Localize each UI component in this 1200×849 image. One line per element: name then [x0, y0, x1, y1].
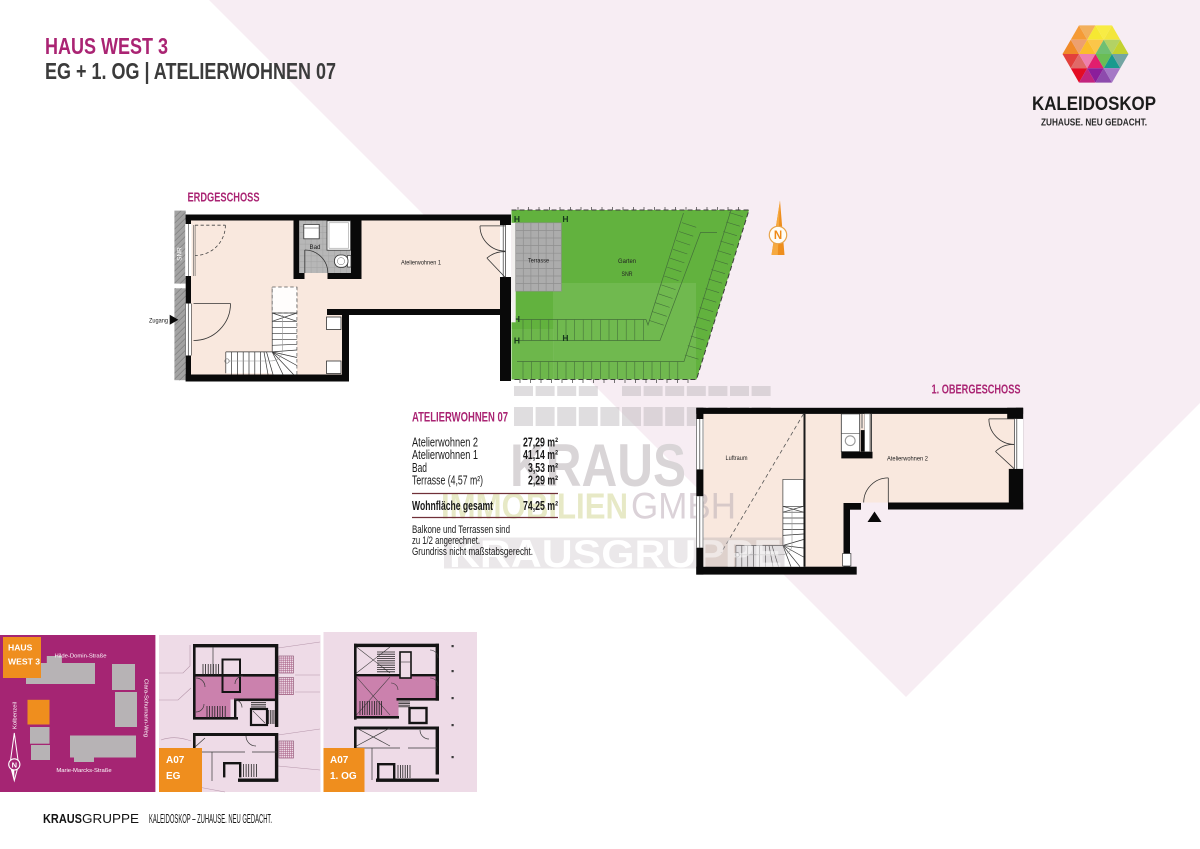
svg-text:A07: A07 — [166, 755, 185, 766]
svg-text:Garten: Garten — [618, 258, 636, 265]
svg-text:ATELIERWOHNEN 07: ATELIERWOHNEN 07 — [412, 409, 508, 425]
svg-text:SNR: SNR — [177, 247, 184, 261]
svg-text:HAUS WEST 3: HAUS WEST 3 — [45, 33, 168, 59]
svg-text:Grundriss nicht maßstabsgerech: Grundriss nicht maßstabsgerecht. — [412, 546, 533, 558]
svg-text:Terrasse (4,57 m²): Terrasse (4,57 m²) — [412, 473, 483, 488]
svg-text:Hilde-Domin-Straße: Hilde-Domin-Straße — [54, 654, 107, 660]
svg-text:HAUS: HAUS — [8, 643, 33, 653]
svg-text:EG + 1. OG | ATELIERWOHNEN 07: EG + 1. OG | ATELIERWOHNEN 07 — [45, 58, 336, 84]
svg-text:Clara-Schumann-Weg: Clara-Schumann-Weg — [143, 679, 149, 737]
svg-text:A07: A07 — [330, 755, 349, 766]
svg-text:H: H — [562, 333, 568, 343]
svg-text:N: N — [774, 230, 782, 242]
svg-text:Atelierwohnen 1: Atelierwohnen 1 — [401, 260, 441, 267]
svg-text:Kolbenzeil: Kolbenzeil — [13, 702, 19, 729]
svg-text:KALEIDOSKOP – ZUHAUSE. NEU GED: KALEIDOSKOP – ZUHAUSE. NEU GEDACHT. — [149, 812, 272, 826]
svg-text:1. OG: 1. OG — [330, 771, 357, 782]
svg-text:WEST 3: WEST 3 — [8, 657, 40, 667]
svg-text:N: N — [12, 760, 17, 769]
svg-text:GRUPPE: GRUPPE — [82, 812, 139, 826]
svg-text:Wohnfläche gesamt: Wohnfläche gesamt — [412, 498, 493, 513]
svg-text:Luftraum: Luftraum — [726, 455, 748, 462]
svg-text:Marie-Marcks-Straße: Marie-Marcks-Straße — [56, 768, 112, 774]
svg-text:H: H — [514, 336, 520, 346]
svg-text:Terrasse: Terrasse — [528, 258, 549, 265]
svg-text:1. OBERGESCHOSS: 1. OBERGESCHOSS — [932, 382, 1021, 397]
svg-text:KRAUS: KRAUS — [43, 812, 82, 826]
svg-text:Atelierwohnen 2: Atelierwohnen 2 — [887, 456, 928, 463]
svg-text:74,25 m²: 74,25 m² — [523, 498, 558, 513]
svg-text:Bad: Bad — [309, 244, 321, 251]
svg-text:EG: EG — [166, 771, 181, 782]
svg-text:Zugang: Zugang — [149, 318, 168, 325]
svg-text:KALEIDOSKOP: KALEIDOSKOP — [1032, 94, 1156, 115]
svg-text:ERDGESCHOSS: ERDGESCHOSS — [188, 191, 260, 205]
svg-text:2,29 m²: 2,29 m² — [528, 473, 558, 488]
svg-text:SNR: SNR — [622, 271, 633, 278]
svg-text:H: H — [562, 214, 568, 224]
svg-text:ZUHAUSE. NEU GEDACHT.: ZUHAUSE. NEU GEDACHT. — [1041, 117, 1147, 129]
